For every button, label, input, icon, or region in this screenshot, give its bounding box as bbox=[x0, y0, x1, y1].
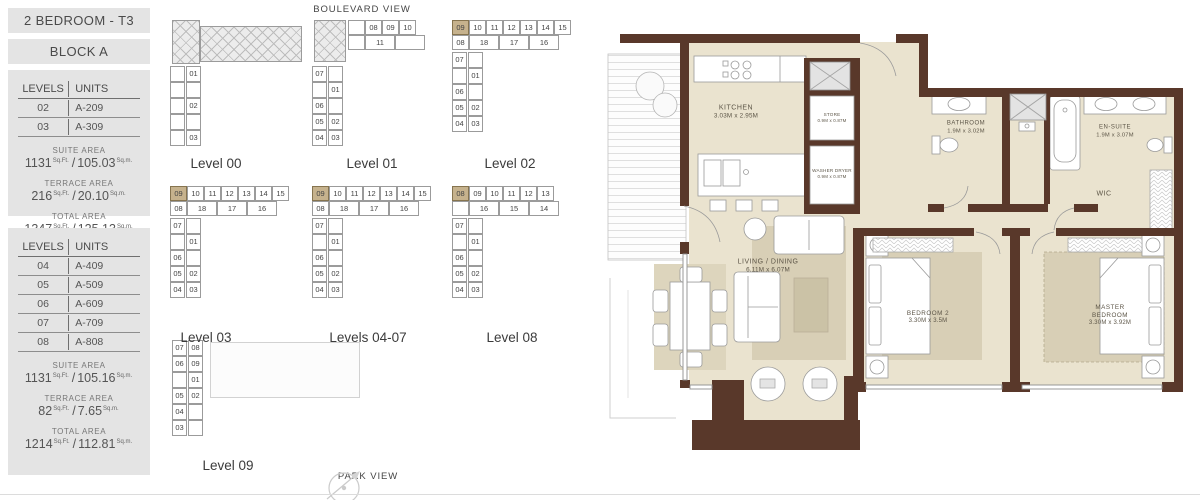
keyplan-unit: 04 bbox=[452, 116, 467, 132]
room-label-washer-dryer: WASHER DRYER 0.9M x 0.87M bbox=[811, 168, 853, 180]
table-header: LEVELS UNITS bbox=[18, 80, 140, 99]
keyplan-unit bbox=[328, 250, 343, 266]
keyplan-unit: 11 bbox=[365, 35, 395, 50]
keyplan-unit: 07 bbox=[170, 218, 185, 234]
keyplan-unit: 14 bbox=[537, 20, 554, 35]
units-panel-levels-02-03: LEVELS UNITS 02 A-209 03 A-309 SUITE ARE… bbox=[8, 70, 150, 216]
keyplan-unit: 10 bbox=[469, 20, 486, 35]
col-levels: LEVELS bbox=[18, 239, 69, 255]
page-bottom-rule bbox=[0, 494, 1200, 495]
keyplan-unit: 05 bbox=[312, 266, 327, 282]
suite-area: SUITE AREA 1131Sq.Ft./105.16Sq.m. bbox=[18, 361, 140, 385]
keyplan-unit: 13 bbox=[537, 186, 554, 201]
table-row: 05 A-509 bbox=[18, 276, 140, 295]
suite-area: SUITE AREA 1131Sq.Ft./105.03Sq.m. bbox=[18, 146, 140, 170]
area-label: TERRACE AREA bbox=[18, 179, 140, 188]
floorplan-drawing bbox=[598, 28, 1188, 463]
keyplan-unit: 02 bbox=[468, 100, 483, 116]
keyplan-unit: 09 bbox=[469, 186, 486, 201]
keyplan-unit: 09 bbox=[170, 186, 187, 201]
keyplan-unit: 10 bbox=[187, 186, 204, 201]
keyplan-level-03: 091011121314150818171607010605020403 bbox=[170, 186, 310, 326]
keyplan-unit: 04 bbox=[452, 282, 467, 298]
keyplan-label: Level 09 bbox=[158, 458, 298, 473]
keyplan-unit bbox=[170, 82, 185, 98]
keyplan-unit: 08 bbox=[452, 186, 469, 201]
keyplan-unit bbox=[186, 82, 201, 98]
area-label: SUITE AREA bbox=[18, 146, 140, 155]
table-row: 03 A-309 bbox=[18, 118, 140, 137]
keyplan-unit: 11 bbox=[503, 186, 520, 201]
levels-units-table: LEVELS UNITS 02 A-209 03 A-309 bbox=[18, 80, 140, 137]
keyplan-unit: 11 bbox=[204, 186, 221, 201]
keyplan-unit: 13 bbox=[380, 186, 397, 201]
keyplan-unit: 03 bbox=[186, 282, 201, 298]
level-cell: 06 bbox=[18, 296, 69, 312]
keyplan-unit: 10 bbox=[486, 186, 503, 201]
area-value: 1131Sq.Ft./105.03Sq.m. bbox=[18, 156, 140, 170]
keyplan-structure bbox=[200, 26, 302, 62]
unit-cell: A-309 bbox=[69, 119, 140, 135]
keyplan-unit: 03 bbox=[172, 420, 187, 436]
keyplan-structure bbox=[172, 20, 200, 64]
keyplan-unit: 08 bbox=[365, 20, 382, 35]
keyplan-unit: 13 bbox=[238, 186, 255, 201]
keyplan-unit: 09 bbox=[382, 20, 399, 35]
keyplan-unit bbox=[186, 250, 201, 266]
keyplan-unit: 14 bbox=[529, 201, 559, 216]
keyplan-unit: 05 bbox=[312, 114, 327, 130]
keyplan-unit: 02 bbox=[328, 266, 343, 282]
keyplan-unit: 01 bbox=[186, 234, 201, 250]
keyplan-unit: 01 bbox=[328, 234, 343, 250]
keyplan-unit bbox=[172, 372, 187, 388]
keyplan-structure bbox=[314, 20, 346, 62]
keyplan-unit: 02 bbox=[186, 98, 201, 114]
keyplan-unit: 04 bbox=[172, 404, 187, 420]
main-floorplan: KITCHEN 3.03M x 2.95M STORE 0.9M x 0.87M… bbox=[598, 28, 1188, 463]
keyplan-unit: 01 bbox=[468, 68, 483, 84]
keyplan-unit: 09 bbox=[312, 186, 329, 201]
level-cell: 04 bbox=[18, 258, 69, 274]
keyplan-label: Level 01 bbox=[302, 156, 442, 171]
keyplan-unit: 08 bbox=[452, 35, 469, 50]
room-label-living-dining: LIVING / DINING 6.11M x 6.07M bbox=[738, 257, 799, 274]
keyplan-unit: 06 bbox=[452, 250, 467, 266]
keyplan-unit: 14 bbox=[255, 186, 272, 201]
keyplan-level-00: 010203 bbox=[170, 20, 310, 155]
unit-cell: A-209 bbox=[69, 100, 140, 116]
area-value: 82Sq.Ft./7.65Sq.m. bbox=[18, 404, 140, 418]
keyplan-unit bbox=[312, 234, 327, 250]
keyplan-unit: 07 bbox=[312, 218, 327, 234]
keyplan-unit bbox=[395, 35, 425, 50]
units-panel-levels-04-08: LEVELS UNITS 04 A-409 05 A-509 06 A-609 … bbox=[8, 228, 150, 475]
keyplan-unit bbox=[468, 250, 483, 266]
area-value: 216Sq.Ft./20.10Sq.m. bbox=[18, 189, 140, 203]
keyplan-unit: 06 bbox=[170, 250, 185, 266]
keyplan-level-01: 0809101107010605020403 bbox=[312, 20, 452, 155]
level-cell: 08 bbox=[18, 334, 69, 350]
area-value: 1214Sq.Ft./112.81Sq.m. bbox=[18, 437, 140, 451]
keyplan-unit: 03 bbox=[328, 130, 343, 146]
keyplan-unit bbox=[170, 98, 185, 114]
room-label-master-bedroom: MASTER BEDROOM 3.30M x 3.92M bbox=[1084, 304, 1136, 328]
table-row: 06 A-609 bbox=[18, 295, 140, 314]
keyplan-level-02: 091011121314150818171607010605020403 bbox=[452, 20, 592, 155]
terrace-area: TERRACE AREA 82Sq.Ft./7.65Sq.m. bbox=[18, 394, 140, 418]
keyplan-unit bbox=[468, 218, 483, 234]
keyplan-unit: 10 bbox=[399, 20, 416, 35]
keyplan-unit: 01 bbox=[188, 372, 203, 388]
col-units: UNITS bbox=[69, 239, 140, 255]
keyplan-unit: 14 bbox=[397, 186, 414, 201]
keyplan-unit: 05 bbox=[170, 266, 185, 282]
keyplan-unit bbox=[312, 82, 327, 98]
area-value: 1131Sq.Ft./105.16Sq.m. bbox=[18, 371, 140, 385]
keyplan-unit bbox=[170, 130, 185, 146]
keyplan-level-08: 08091011121316151407010605020403 bbox=[452, 186, 592, 326]
unit-cell: A-409 bbox=[69, 258, 140, 274]
keyplan-unit bbox=[468, 52, 483, 68]
keyplan-unit bbox=[452, 68, 467, 84]
keyplan-unit bbox=[348, 20, 365, 35]
keyplan-unit: 16 bbox=[469, 201, 499, 216]
keyplan-unit: 02 bbox=[188, 388, 203, 404]
keyplan-structure bbox=[210, 342, 360, 398]
area-label: TOTAL AREA bbox=[18, 427, 140, 436]
table-row: 04 A-409 bbox=[18, 257, 140, 276]
keyplan-unit bbox=[452, 201, 469, 216]
table-row: 07 A-709 bbox=[18, 314, 140, 333]
keyplan-unit: 06 bbox=[452, 84, 467, 100]
keyplan-unit: 03 bbox=[468, 116, 483, 132]
total-area: TOTAL AREA 1214Sq.Ft./112.81Sq.m. bbox=[18, 427, 140, 451]
keyplan-unit: 12 bbox=[363, 186, 380, 201]
keyplan-unit bbox=[328, 98, 343, 114]
keyplan-unit: 05 bbox=[452, 100, 467, 116]
keyplan-level-09: 070806090105020403 bbox=[172, 340, 412, 452]
table-row: 02 A-209 bbox=[18, 99, 140, 118]
unit-cell: A-509 bbox=[69, 277, 140, 293]
keyplan-unit: 02 bbox=[186, 266, 201, 282]
keyplan-unit bbox=[452, 234, 467, 250]
col-levels: LEVELS bbox=[18, 81, 69, 97]
compass-icon bbox=[318, 467, 372, 500]
level-cell: 07 bbox=[18, 315, 69, 331]
keyplan-unit: 04 bbox=[312, 130, 327, 146]
level-cell: 02 bbox=[18, 100, 69, 116]
keyplan-unit: 11 bbox=[486, 20, 503, 35]
keyplan-unit bbox=[328, 218, 343, 234]
keyplan-unit bbox=[186, 218, 201, 234]
room-label-wic: WIC bbox=[1096, 189, 1111, 198]
keyplan-unit: 17 bbox=[499, 35, 529, 50]
keyplan-unit: 08 bbox=[170, 201, 187, 216]
table-header: LEVELS UNITS bbox=[18, 238, 140, 257]
keyplan-unit bbox=[170, 234, 185, 250]
room-label-bedroom-2: BEDROOM 2 3.30M x 3.5M bbox=[907, 310, 949, 326]
keyplan-unit: 09 bbox=[188, 356, 203, 372]
levels-units-table: LEVELS UNITS 04 A-409 05 A-509 06 A-609 … bbox=[18, 238, 140, 352]
room-label-kitchen: KITCHEN 3.03M x 2.95M bbox=[714, 103, 758, 120]
keyplan-unit: 03 bbox=[186, 130, 201, 146]
keyplan-label: Level 00 bbox=[146, 156, 286, 171]
keyplan-label: Level 03 bbox=[136, 330, 276, 345]
keyplan-unit: 01 bbox=[468, 234, 483, 250]
keyplan-unit: 10 bbox=[329, 186, 346, 201]
keyplan-unit: 05 bbox=[172, 388, 187, 404]
area-label: TERRACE AREA bbox=[18, 394, 140, 403]
keyplan-unit bbox=[188, 404, 203, 420]
keyplan-unit bbox=[170, 114, 185, 130]
room-label-bathroom: BATHROOM 1.9M x 3.02M bbox=[947, 120, 985, 135]
keyplan-label: Level 02 bbox=[440, 156, 580, 171]
keyplan-unit: 02 bbox=[468, 266, 483, 282]
keyplan-unit: 12 bbox=[221, 186, 238, 201]
keyplan-unit: 13 bbox=[520, 20, 537, 35]
keyplan-unit bbox=[328, 66, 343, 82]
keyplan-unit: 05 bbox=[452, 266, 467, 282]
keyplan-unit: 04 bbox=[312, 282, 327, 298]
keyplan-unit: 15 bbox=[554, 20, 571, 35]
keyplan-unit: 16 bbox=[529, 35, 559, 50]
boulevard-view-label: BOULEVARD VIEW bbox=[252, 4, 472, 15]
level-cell: 03 bbox=[18, 119, 69, 135]
keyplan-unit: 03 bbox=[468, 282, 483, 298]
keyplan-unit: 01 bbox=[186, 66, 201, 82]
terrace-area: TERRACE AREA 216Sq.Ft./20.10Sq.m. bbox=[18, 179, 140, 203]
keyplan-unit: 18 bbox=[187, 201, 217, 216]
block-title: BLOCK A bbox=[8, 39, 150, 64]
room-label-store: STORE 0.9M x 0.87M bbox=[811, 112, 853, 124]
floorplan-page: 2 BEDROOM - T3 BLOCK A LEVELS UNITS 02 A… bbox=[0, 0, 1200, 500]
keyplan-unit: 18 bbox=[329, 201, 359, 216]
keyplan-unit: 02 bbox=[328, 114, 343, 130]
keyplan-unit: 17 bbox=[359, 201, 389, 216]
keyplan-unit: 06 bbox=[172, 356, 187, 372]
page-title: 2 BEDROOM - T3 bbox=[8, 8, 150, 33]
level-cell: 05 bbox=[18, 277, 69, 293]
keyplan-unit: 07 bbox=[452, 218, 467, 234]
keyplan-unit: 15 bbox=[499, 201, 529, 216]
keyplan-unit: 15 bbox=[272, 186, 289, 201]
room-label-ensuite: EN-SUITE 1.9M x 3.07M bbox=[1096, 124, 1134, 139]
keyplan-unit: 08 bbox=[312, 201, 329, 216]
keyplan-unit: 07 bbox=[312, 66, 327, 82]
keyplan-unit bbox=[348, 35, 365, 50]
keyplan-unit bbox=[188, 420, 203, 436]
keyplan-unit: 15 bbox=[414, 186, 431, 201]
keyplan-unit: 07 bbox=[452, 52, 467, 68]
col-units: UNITS bbox=[69, 81, 140, 97]
unit-cell: A-709 bbox=[69, 315, 140, 331]
table-row: 08 A-808 bbox=[18, 333, 140, 352]
keyplan-unit: 16 bbox=[247, 201, 277, 216]
keyplan-unit: 17 bbox=[217, 201, 247, 216]
area-label: SUITE AREA bbox=[18, 361, 140, 370]
area-label: TOTAL AREA bbox=[18, 212, 140, 221]
keyplan-unit bbox=[186, 114, 201, 130]
keyplan-levels-04-07: 091011121314150818171607010605020403 bbox=[312, 186, 452, 326]
unit-cell: A-609 bbox=[69, 296, 140, 312]
keyplan-unit: 03 bbox=[328, 282, 343, 298]
unit-cell: A-808 bbox=[69, 334, 140, 350]
keyplan-unit: 06 bbox=[312, 250, 327, 266]
keyplan-unit: 01 bbox=[328, 82, 343, 98]
keyplan-unit: 12 bbox=[520, 186, 537, 201]
keyplan-unit: 09 bbox=[452, 20, 469, 35]
keyplan-unit: 06 bbox=[312, 98, 327, 114]
keyplan-label: Level 08 bbox=[442, 330, 582, 345]
keyplan-unit: 18 bbox=[469, 35, 499, 50]
keyplan-unit bbox=[170, 66, 185, 82]
keyplan-label: Levels 04-07 bbox=[298, 330, 438, 345]
keyplan-unit: 16 bbox=[389, 201, 419, 216]
keyplan-unit bbox=[468, 84, 483, 100]
keyplan-unit: 04 bbox=[170, 282, 185, 298]
keyplan-unit: 12 bbox=[503, 20, 520, 35]
keyplan-unit: 11 bbox=[346, 186, 363, 201]
